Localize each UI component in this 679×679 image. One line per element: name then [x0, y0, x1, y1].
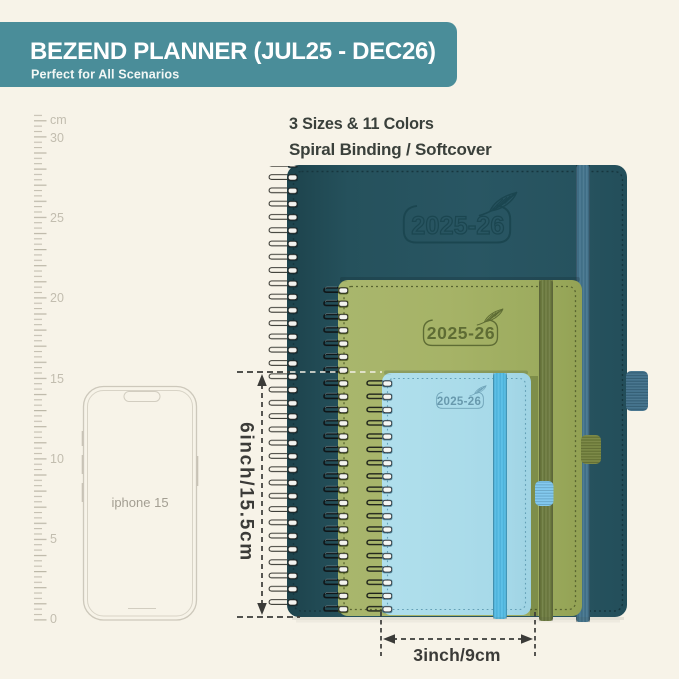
svg-text:25: 25 — [50, 211, 64, 225]
svg-text:30: 30 — [50, 131, 64, 145]
svg-text:3 Sizes & 11 Colors: 3 Sizes & 11 Colors — [289, 115, 434, 133]
svg-text:BEZEND PLANNER (JUL25 - DEC26): BEZEND PLANNER (JUL25 - DEC26) — [30, 38, 436, 65]
svg-text:15: 15 — [50, 372, 64, 386]
svg-text:20: 20 — [50, 291, 64, 305]
svg-text:iphone 15: iphone 15 — [111, 495, 168, 510]
svg-text:3inch/9cm: 3inch/9cm — [413, 645, 500, 665]
svg-text:2025-26: 2025-26 — [427, 323, 495, 343]
svg-text:2025-26: 2025-26 — [437, 396, 481, 408]
svg-text:5: 5 — [50, 532, 57, 546]
svg-text:cm: cm — [50, 113, 67, 127]
svg-text:6inch/15.5cm: 6inch/15.5cm — [236, 422, 257, 562]
svg-text:Perfect for All Scenarios: Perfect for All Scenarios — [31, 68, 179, 82]
svg-text:0: 0 — [50, 612, 57, 626]
svg-text:2025-26: 2025-26 — [411, 212, 504, 240]
svg-text:10: 10 — [50, 452, 64, 466]
svg-text:Spiral Binding / Softcover: Spiral Binding / Softcover — [289, 140, 492, 159]
